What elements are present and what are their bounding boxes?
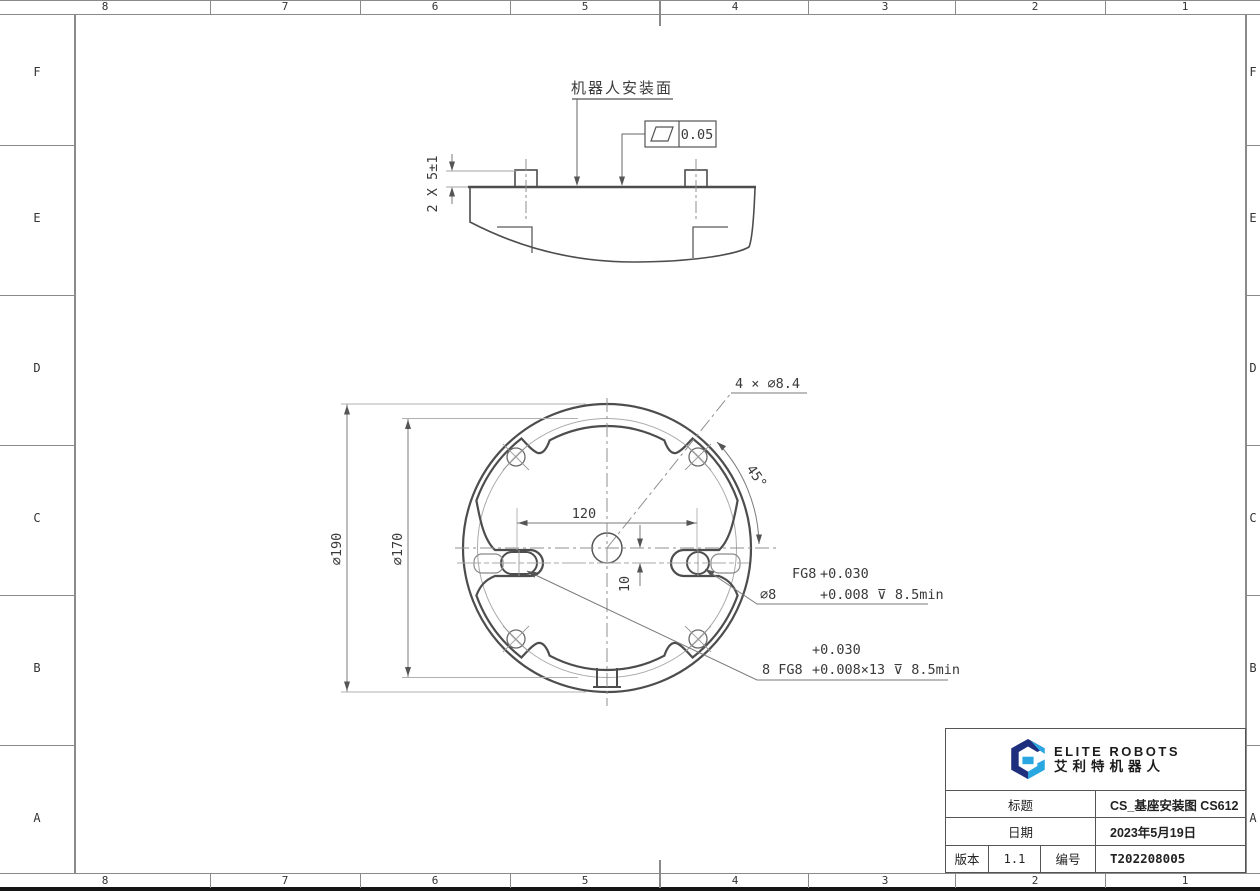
date-row: 日期 2023年5月19日 bbox=[946, 818, 1245, 845]
drawing-sheet: 8 7 6 5 4 3 2 1 8 7 6 5 4 3 2 1 F E D C … bbox=[0, 0, 1260, 891]
leader-arrow bbox=[574, 177, 580, 187]
brand-name-cn: 艾利特机器人 bbox=[1054, 760, 1180, 774]
holes-count-label: 4 × ⌀8.4 bbox=[735, 376, 800, 392]
thread-fit-lower: +0.008×13 ⊽ 8.5min bbox=[812, 662, 960, 678]
date-value: 2023年5月19日 bbox=[1096, 818, 1245, 844]
pin-centerlines bbox=[526, 159, 696, 219]
version-label: 版本 bbox=[946, 846, 989, 872]
inner-step-right bbox=[693, 227, 728, 258]
inner-step-left bbox=[497, 227, 532, 253]
thread-fit-upper: +0.030 bbox=[812, 642, 861, 658]
pins-dim-label: 2 X 5±1 bbox=[425, 156, 441, 213]
pin-fit-size: ⌀8 bbox=[760, 587, 776, 603]
brand-name-en: ELITE ROBOTS bbox=[1054, 745, 1180, 759]
date-label: 日期 bbox=[946, 818, 1096, 844]
elite-robots-logo-icon bbox=[1011, 739, 1045, 780]
dim-arrow bbox=[449, 187, 455, 197]
dim-arrow bbox=[449, 162, 455, 172]
title-label: 标题 bbox=[946, 791, 1096, 817]
number-value: T202208005 bbox=[1096, 846, 1245, 872]
brand-logo: ELITE ROBOTS 艾利特机器人 bbox=[946, 729, 1245, 791]
flatness-leader bbox=[622, 134, 645, 180]
surface-label: 机器人安装面 bbox=[571, 80, 673, 97]
base-profile bbox=[470, 187, 755, 262]
title-row: 标题 CS_基座安装图 CS612 bbox=[946, 791, 1245, 818]
title-value: CS_基座安装图 CS612 bbox=[1096, 791, 1245, 817]
title-block: ELITE ROBOTS 艾利特机器人 标题 CS_基座安装图 CS612 日期… bbox=[945, 728, 1246, 873]
side-view bbox=[446, 99, 756, 262]
thread-fit-prefix: 8 FG8 bbox=[762, 662, 803, 678]
offset-dim-label: 10 bbox=[617, 576, 633, 592]
dim-45-arc bbox=[717, 442, 759, 544]
leader-arrow bbox=[619, 177, 625, 187]
pin-fit-upper: +0.030 bbox=[820, 566, 869, 582]
outer-dia-label: ⌀190 bbox=[329, 533, 345, 566]
number-label: 编号 bbox=[1041, 846, 1096, 872]
bolt-circle-dia-label: ⌀170 bbox=[390, 533, 406, 566]
version-row: 版本 1.1 编号 T202208005 bbox=[946, 846, 1245, 872]
plan-view bbox=[455, 393, 776, 706]
pin-fit-grade: FG8 bbox=[792, 566, 816, 582]
spacing-dim-label: 120 bbox=[572, 506, 596, 522]
extension-lines bbox=[446, 171, 517, 187]
pin-fit-lower: +0.008 ⊽ 8.5min bbox=[820, 587, 944, 603]
flatness-value: 0.05 bbox=[681, 127, 714, 143]
version-value: 1.1 bbox=[989, 846, 1041, 872]
